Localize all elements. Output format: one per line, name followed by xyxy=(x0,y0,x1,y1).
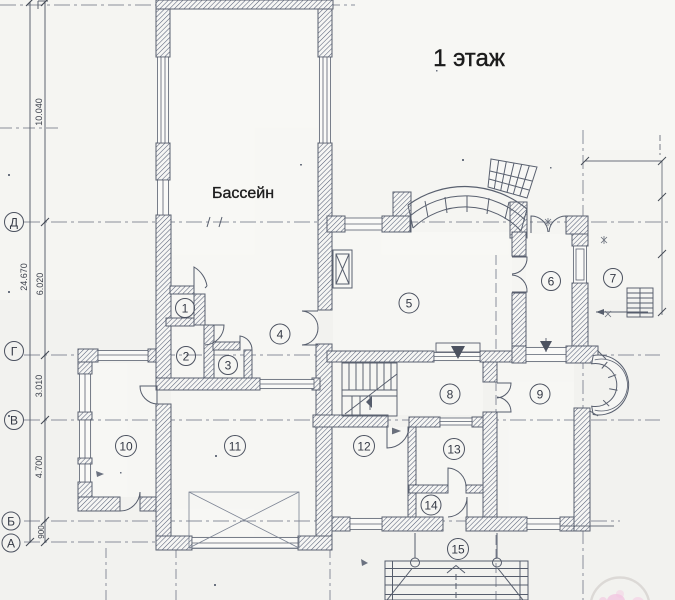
svg-text:Г: Г xyxy=(11,345,18,359)
svg-text:3.010: 3.010 xyxy=(34,375,44,398)
svg-text:А: А xyxy=(7,537,15,551)
svg-text:24.670: 24.670 xyxy=(19,263,29,291)
svg-text:13: 13 xyxy=(447,443,461,457)
svg-text:11: 11 xyxy=(229,440,242,454)
svg-text:1: 1 xyxy=(182,302,189,316)
svg-text:6: 6 xyxy=(548,275,555,289)
svg-text:12: 12 xyxy=(357,440,371,454)
svg-text:7: 7 xyxy=(610,272,617,286)
svg-text:1 этаж: 1 этаж xyxy=(433,45,505,72)
svg-text:15: 15 xyxy=(451,543,465,557)
svg-text:9: 9 xyxy=(537,388,544,402)
svg-text:6.020: 6.020 xyxy=(35,273,45,296)
svg-text:14: 14 xyxy=(424,499,438,513)
svg-text:10.040: 10.040 xyxy=(34,98,44,126)
svg-text:Бассейн: Бассейн xyxy=(212,185,274,202)
svg-text:4: 4 xyxy=(277,328,284,342)
svg-text:5: 5 xyxy=(406,297,413,311)
svg-text:4.700: 4.700 xyxy=(34,456,44,479)
svg-text:10: 10 xyxy=(119,440,133,454)
svg-text:900: 900 xyxy=(37,525,46,539)
svg-text:2: 2 xyxy=(183,350,190,364)
svg-text:В: В xyxy=(10,414,18,428)
svg-text:8: 8 xyxy=(447,388,454,402)
svg-text:Д: Д xyxy=(10,216,18,230)
svg-text:3: 3 xyxy=(225,359,232,373)
svg-text:Б: Б xyxy=(7,515,15,529)
